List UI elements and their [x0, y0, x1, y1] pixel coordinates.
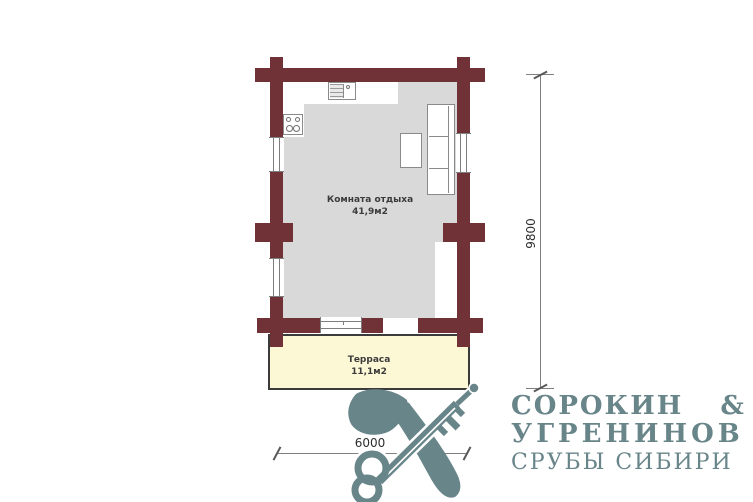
wall-right	[457, 57, 470, 347]
stove-burner	[286, 117, 291, 122]
kitchen-sink	[328, 82, 356, 100]
axe-and-key-icon	[327, 383, 509, 502]
sofa	[427, 104, 455, 195]
window-right	[456, 133, 471, 173]
sofa-cushion-line	[429, 168, 448, 169]
sink-faucet	[346, 85, 350, 89]
window-bottom	[320, 317, 362, 333]
room-label: Комната отдыха 41,9м2	[283, 194, 457, 218]
stove-burner	[295, 117, 300, 122]
terrace-area: 11,1м2	[268, 366, 470, 378]
log-cross-right	[443, 223, 485, 242]
dimension-height-text: 9800	[524, 211, 537, 256]
stove-burner	[286, 125, 293, 132]
stove-burner	[293, 125, 300, 132]
floor-plan-canvas: Комната отдыха 41,9м2 Терраса 11,1м2 980…	[0, 0, 753, 502]
company-name-line1: СОРОКИН &	[511, 392, 747, 420]
wall-bottom	[257, 318, 483, 333]
window-left-upper	[269, 137, 284, 172]
room-name: Комната отдыха	[283, 194, 457, 206]
sofa-backrest-line	[448, 106, 449, 193]
sink-drainboard	[330, 84, 343, 98]
company-wordmark: СОРОКИН & УГРЕНИНОВ СРУБЫ СИБИРИ	[511, 392, 747, 476]
room-area: 41,9м2	[283, 206, 457, 218]
wall-left	[270, 57, 283, 347]
window-left-lower	[269, 258, 284, 297]
company-tagline: СРУБЫ СИБИРИ	[511, 449, 747, 476]
log-cross-left	[255, 223, 293, 242]
wall-top	[255, 68, 485, 82]
coffee-table	[400, 133, 422, 168]
door-opening	[383, 318, 418, 333]
key-tip-knob	[469, 383, 479, 393]
sofa-cushion-line	[429, 136, 448, 137]
terrace-name: Терраса	[268, 354, 470, 366]
terrace-label: Терраса 11,1м2	[268, 354, 470, 378]
dimension-line-vertical	[540, 75, 541, 388]
stove	[283, 114, 303, 135]
entry-zone	[435, 242, 457, 318]
company-name-line2: УГРЕНИНОВ	[511, 420, 747, 449]
window-mullion	[343, 321, 344, 325]
